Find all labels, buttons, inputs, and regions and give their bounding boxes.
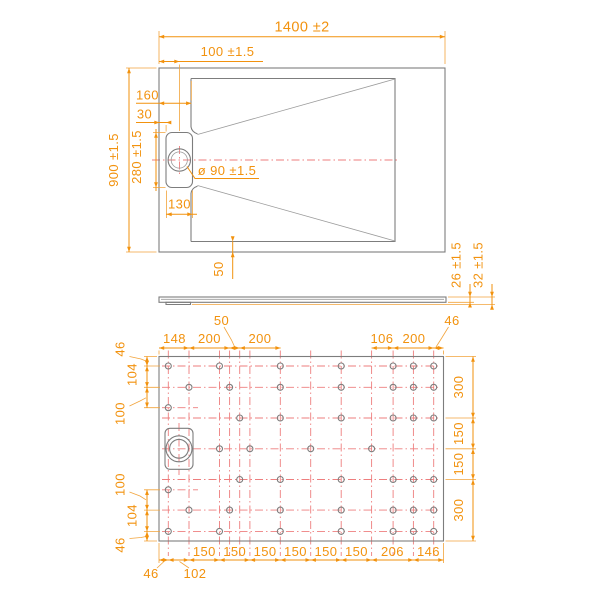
bottom-view-dimension-lines (147, 348, 473, 560)
dim-right-1: 150 (451, 422, 466, 445)
dim-bottom-2: 150 (193, 544, 216, 559)
dim-bottom-7: 150 (345, 544, 368, 559)
dim-right-0: 300 (451, 376, 466, 399)
dim-bottom-9: 146 (417, 544, 440, 559)
dim-recess-side-offset: 30 (137, 107, 152, 122)
drawing-canvas: 1400 ±2 100 ±1.5 160 30 280 ±1.5 130 900… (0, 0, 600, 600)
drain-boss-profile (166, 302, 191, 304)
dim-recess-width: 130 (168, 197, 191, 212)
bottom-view-dimension-arrows (145, 346, 475, 562)
dim-left-2: 100 (113, 402, 128, 425)
bottom-view: 148 200 50 200 106 200 46 46 102 150 150… (113, 313, 477, 581)
dim-left-5: 46 (113, 537, 128, 552)
side-profile-group (159, 297, 446, 305)
dim-top-2: 50 (214, 313, 229, 328)
bottom-view-centerlines (162, 351, 441, 557)
dim-overall-depth: 900 ±1.5 (106, 133, 121, 187)
shower-tray-technical-drawing: 1400 ±2 100 ±1.5 160 30 280 ±1.5 130 900… (0, 0, 600, 600)
dim-bottom-1: 102 (184, 566, 207, 581)
top-view-extension-lines (126, 31, 445, 252)
dim-top-3: 200 (249, 331, 272, 346)
floor-edge-left-top (191, 79, 198, 134)
dim-drain-center-from-left: 100 ±1.5 (201, 44, 255, 59)
slope-line-upper (198, 79, 396, 135)
dim-drain-diameter: ø 90 ±1.5 (198, 163, 256, 178)
top-view: 1400 ±2 100 ±1.5 160 30 280 ±1.5 130 900… (106, 20, 445, 280)
dim-bottom-0: 46 (143, 566, 158, 581)
dim-recess-length: 280 ±1.5 (129, 130, 144, 184)
dim-top-6: 46 (444, 313, 459, 328)
dim-right-2: 150 (451, 453, 466, 476)
side-view-extension-lines (192, 297, 495, 305)
dim-floor-inset-bottom: 50 (211, 261, 226, 276)
dim-tray-thickness: 26 ±1.5 (449, 242, 464, 288)
dim-right-3: 300 (451, 499, 466, 522)
dim-overall-width: 1400 ±2 (274, 20, 329, 36)
dim-left-1: 104 (125, 363, 140, 386)
dim-bottom-8: 206 (381, 544, 404, 559)
dim-overall-height: 32 ±1.5 (471, 242, 486, 288)
side-view-dimension-arrows (468, 292, 494, 310)
top-view-dimension-lines (129, 37, 445, 279)
dim-bottom-6: 150 (314, 544, 337, 559)
slope-line-lower (198, 186, 396, 242)
dim-top-1: 200 (198, 331, 221, 346)
dim-bottom-3: 150 (223, 544, 246, 559)
dim-floor-inset-left: 160 (136, 88, 159, 103)
dim-left-0: 46 (113, 341, 128, 356)
dim-bottom-4: 150 (254, 544, 277, 559)
dim-top-0: 148 (163, 331, 186, 346)
dim-left-3: 100 (113, 473, 128, 496)
dim-top-4: 106 (371, 331, 394, 346)
dim-left-4: 104 (125, 504, 140, 527)
dim-top-5: 200 (403, 331, 426, 346)
dim-bottom-5: 150 (284, 544, 307, 559)
